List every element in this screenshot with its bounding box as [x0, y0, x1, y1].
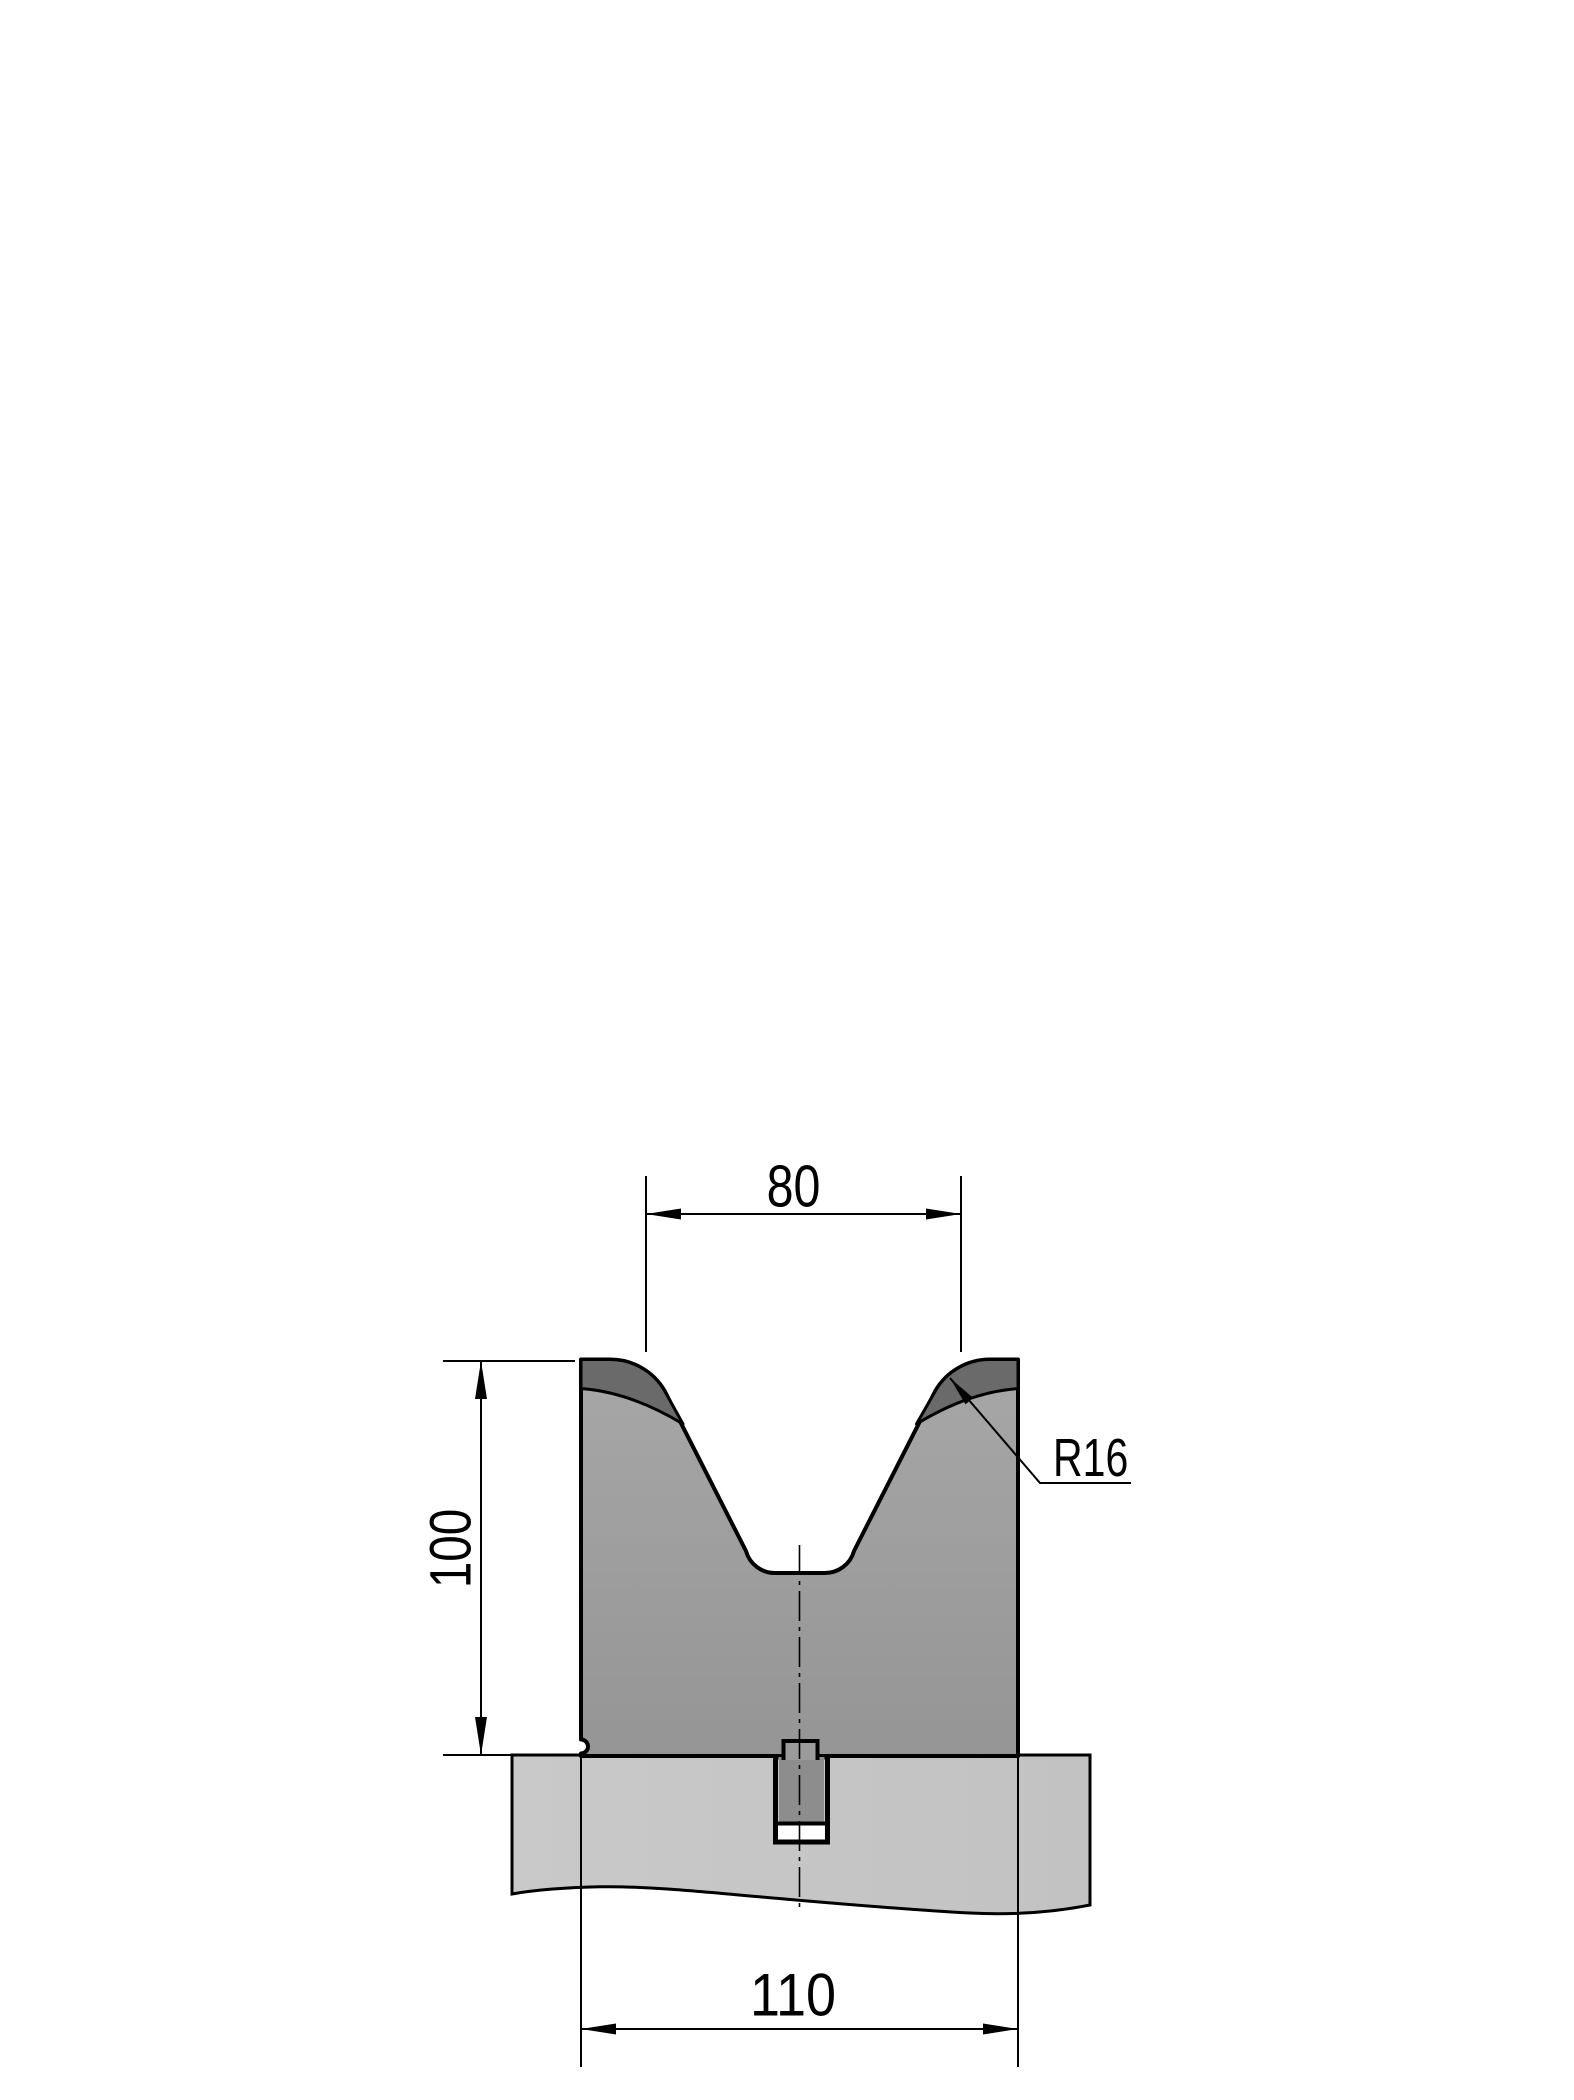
- svg-text:110: 110: [750, 1962, 836, 2029]
- svg-text:80: 80: [767, 1154, 821, 1220]
- svg-text:R16: R16: [1053, 1429, 1128, 1489]
- svg-text:100: 100: [419, 1509, 484, 1588]
